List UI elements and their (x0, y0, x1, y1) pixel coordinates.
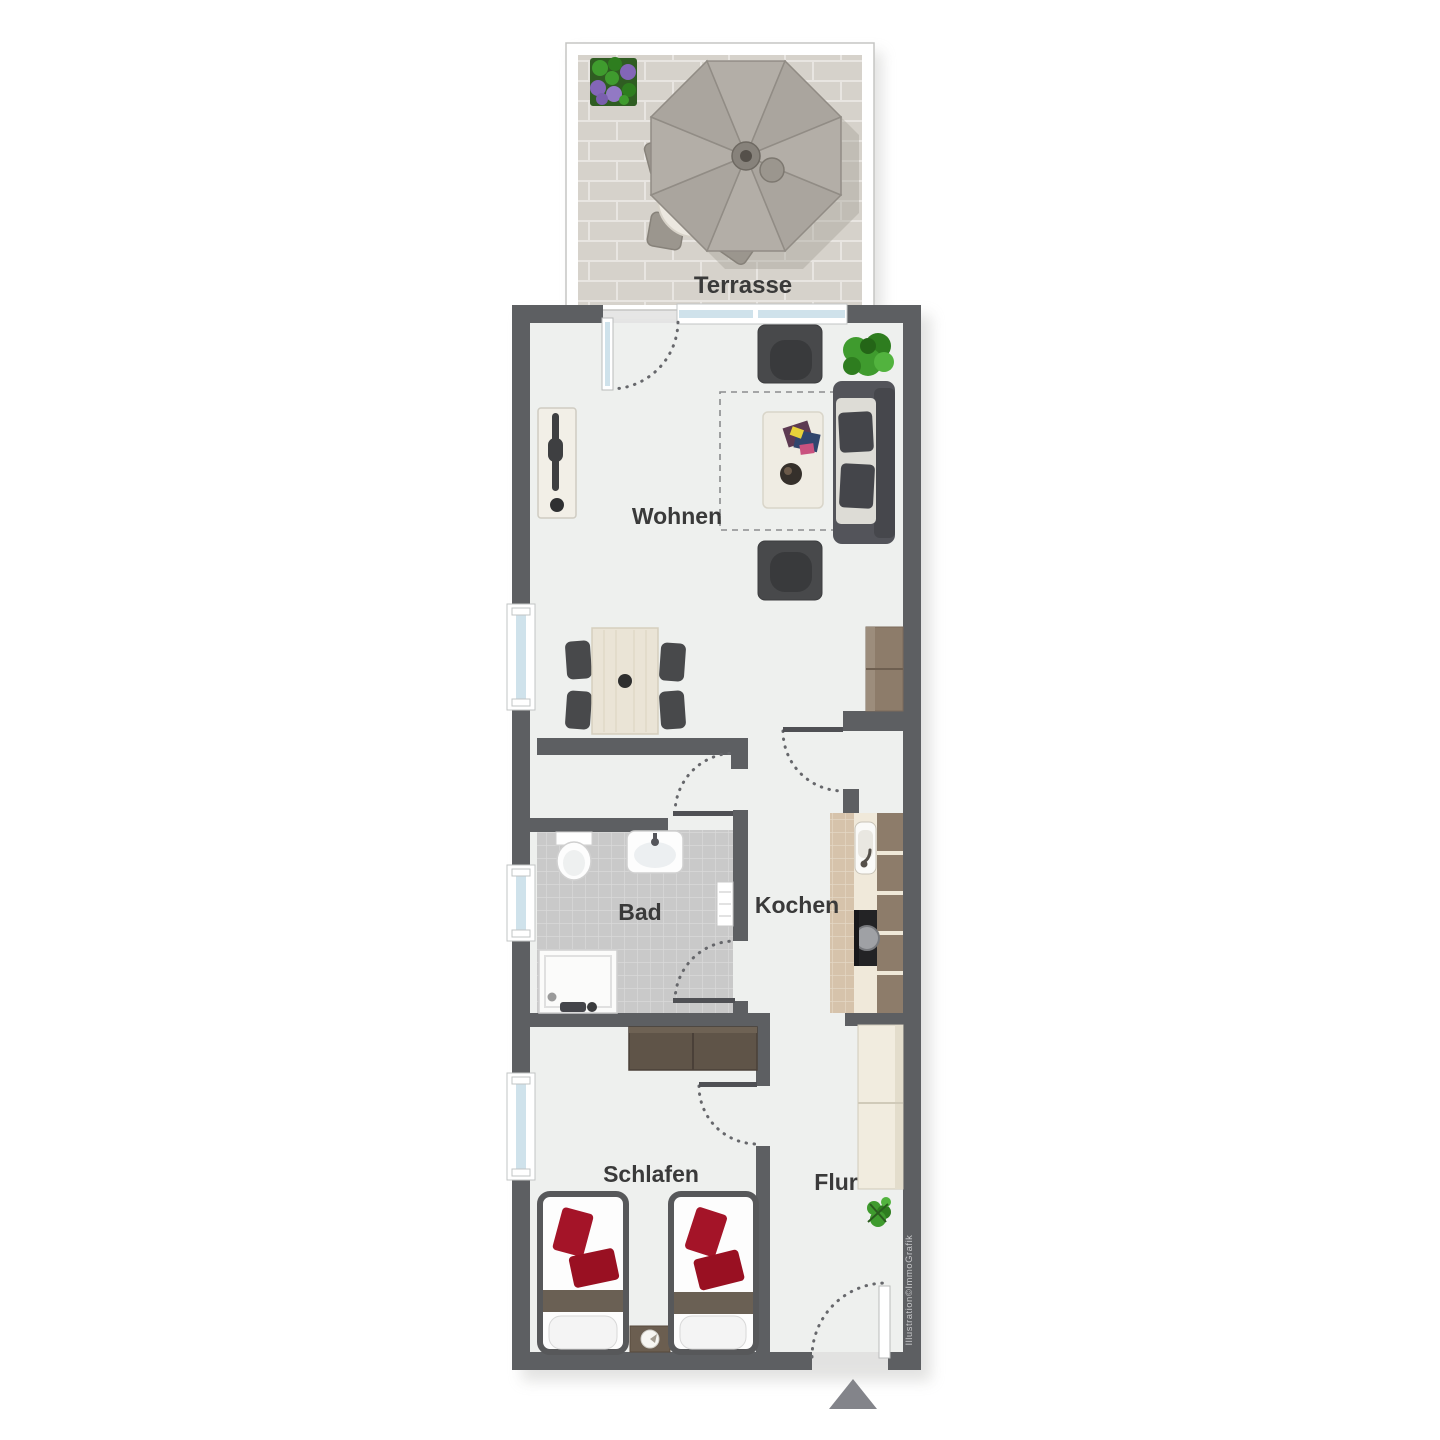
bed-right (671, 1194, 756, 1352)
dining-chair (659, 642, 687, 682)
kitchen-counter (830, 813, 903, 1013)
kitchen-sink (855, 822, 876, 874)
dining-chair (565, 640, 593, 680)
towel-radiator (717, 882, 733, 926)
nightstand (630, 1326, 670, 1352)
armchair-bottom (758, 541, 822, 600)
room-label-flur: Flur (814, 1169, 857, 1195)
entrance-arrow-icon (829, 1379, 877, 1409)
dining-chair (659, 690, 687, 730)
terrace: Terrasse (566, 43, 874, 310)
toilet (556, 832, 592, 880)
armchair-top (758, 325, 822, 383)
terrace-glass-front (677, 304, 847, 324)
room-label-kochen: Kochen (755, 892, 839, 918)
floor-plan-canvas: Terrasse (0, 0, 1440, 1440)
room-label-schlafen: Schlafen (603, 1161, 699, 1187)
tall-cabinet (866, 627, 903, 711)
room-label-bad: Bad (618, 899, 661, 925)
dining-chair (565, 690, 593, 730)
wardrobe (858, 1025, 903, 1189)
sofa (833, 381, 895, 544)
bed-left (540, 1194, 626, 1352)
window-dining (507, 604, 535, 710)
plant-large (843, 333, 894, 376)
floor-plan: Terrasse (0, 0, 1440, 1440)
tv-sideboard (538, 408, 576, 518)
room-label-wohnen: Wohnen (632, 503, 722, 529)
bath-sink (627, 831, 683, 873)
dresser (629, 1027, 757, 1070)
flower-box (590, 57, 637, 106)
window-bath (507, 865, 535, 941)
stove (854, 910, 879, 966)
window-bedroom (507, 1073, 535, 1180)
room-label-terrasse: Terrasse (694, 272, 792, 299)
watermark: Illustration©ImmoGrafik (904, 1235, 915, 1346)
parasol (651, 61, 841, 251)
coffee-table (763, 412, 823, 508)
shower (539, 950, 617, 1013)
